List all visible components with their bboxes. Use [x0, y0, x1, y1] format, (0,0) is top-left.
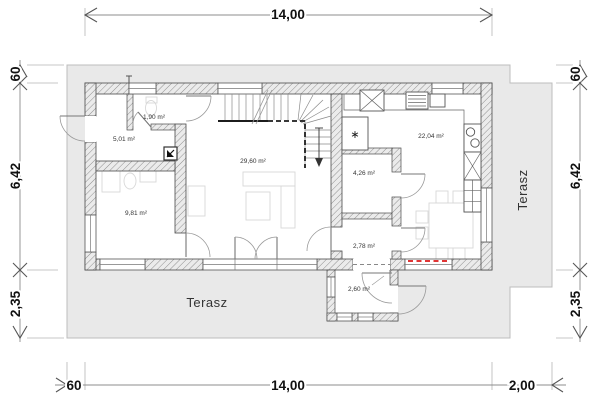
glazed-door-living-south	[203, 259, 317, 270]
counter-appliance	[430, 94, 445, 107]
terrace-label-bottom: Terasz	[186, 295, 227, 310]
floor-plan-drawing: Terasz Terasz	[0, 0, 600, 400]
room-label-wc: 1,90 m²	[143, 114, 166, 121]
dim-right-height: 6,42	[568, 163, 583, 189]
dim-left-offset-top: 60	[8, 66, 23, 81]
shelf-unit	[464, 180, 481, 212]
wall-pantry-passage	[342, 213, 392, 219]
wall-pantry-right	[392, 251, 401, 259]
window-kitchen	[432, 83, 463, 94]
dim-bottom-offset-left: 60	[66, 378, 81, 393]
dim-right-terrace: 2,35	[568, 290, 583, 317]
dim-left-height: 6,42	[8, 163, 23, 189]
room-label-bedroom: 9,81 m²	[125, 210, 148, 217]
wall-hall-living	[175, 124, 186, 233]
dim-bottom-width: 14,00	[271, 378, 305, 393]
wall-pantry-right	[392, 197, 401, 226]
glazed-door-terrace-east	[481, 188, 492, 242]
window-wc	[129, 83, 156, 94]
window-stair	[218, 83, 262, 94]
dimension-bottom: 60 14,00 2,00	[55, 362, 566, 393]
fridge-unit	[360, 90, 384, 111]
wall-wc-bottom	[151, 124, 175, 130]
dimension-right: 60 6,42 2,35	[556, 60, 587, 342]
window-bedroom-south	[100, 259, 145, 270]
room-label-entry: 2,60 m²	[348, 286, 371, 293]
dim-right-offset-top: 60	[568, 66, 583, 81]
entry-door-opening	[85, 116, 96, 142]
dimension-left: 60 6,42 2,35	[8, 60, 64, 342]
wall-hall-bedroom	[96, 161, 175, 171]
wall-living-kitchen	[331, 94, 342, 227]
dimension-top: 14,00	[85, 7, 492, 36]
dim-left-terrace: 2,35	[8, 290, 23, 317]
floor-plan-page: Terasz Terasz	[0, 0, 600, 400]
window-bedroom-west	[85, 215, 96, 252]
wall-pantry-right	[392, 148, 401, 172]
wall-living-kitchen	[331, 251, 342, 259]
room-label-living: 29,60 m²	[240, 158, 266, 165]
room-label-kitchen: 22,04 m²	[418, 133, 444, 140]
tall-cabinet	[464, 152, 481, 180]
chimney: ∗	[342, 117, 368, 150]
room-label-hall: 5,01 m²	[113, 136, 136, 143]
floor-drain-icon	[164, 147, 177, 160]
kitchen-sink	[464, 124, 481, 152]
chimney-symbol: ∗	[350, 129, 359, 141]
room-label-passage: 2,78 m²	[353, 243, 376, 250]
wall-wc-left	[127, 94, 133, 130]
dim-top-width: 14,00	[271, 7, 305, 22]
stove	[406, 92, 428, 109]
dim-bottom-offset-right: 2,00	[509, 378, 535, 393]
room-label-pantry: 4,26 m²	[353, 170, 376, 177]
terrace-label-right: Terasz	[515, 169, 530, 210]
